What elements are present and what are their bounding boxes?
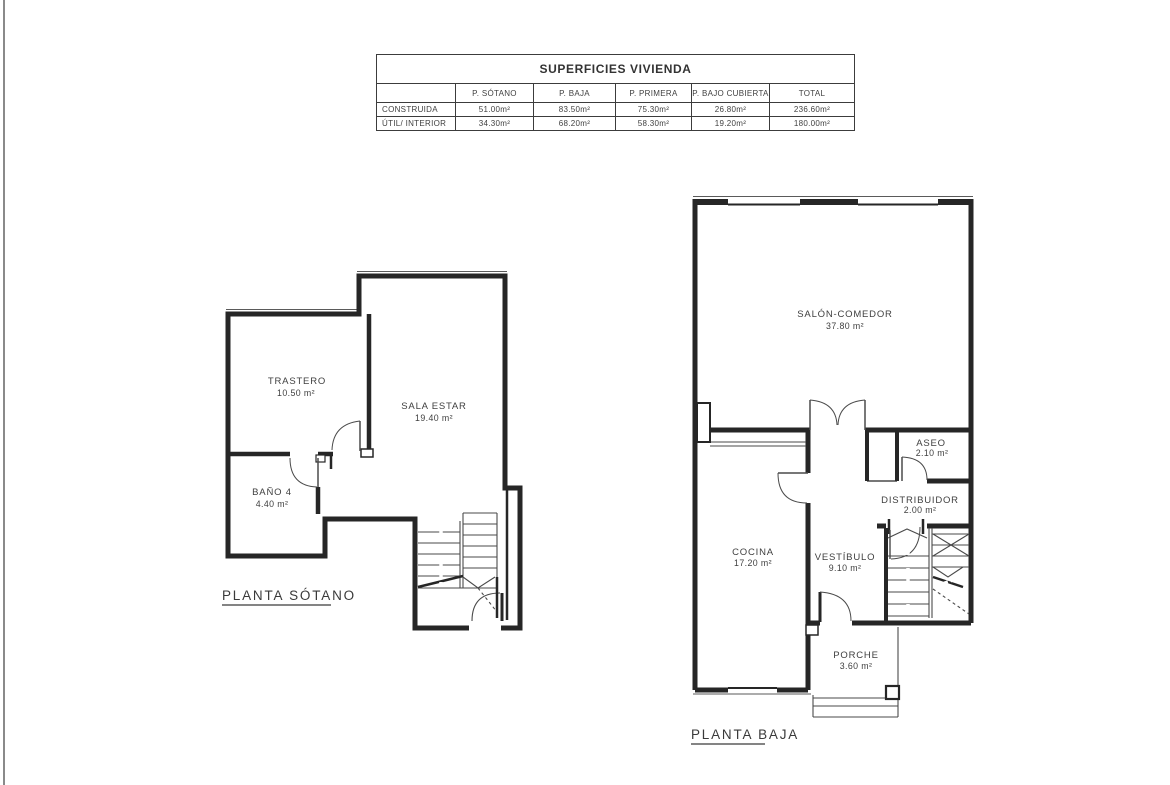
baja-title: PLANTA BAJA <box>691 727 799 744</box>
room-label-aseo: ASEO 2.10 m² <box>916 438 949 458</box>
vestibulo-name: VESTÍBULO <box>815 552 876 563</box>
plan-baja-title: PLANTA BAJA <box>691 727 799 742</box>
room-label-sala-estar: SALA ESTAR 19.40 m² <box>401 401 466 423</box>
vestibulo-area: 9.10 m² <box>829 563 862 573</box>
sotano-stairs <box>418 513 497 618</box>
room-label-trastero: TRASTERO 10.50 m² <box>268 376 326 398</box>
room-label-cocina: COCINA 17.20 m² <box>732 547 774 568</box>
porche-door <box>820 592 851 622</box>
baja-stairs <box>888 528 969 618</box>
sala-estar-name: SALA ESTAR <box>401 401 466 412</box>
trastero-area: 10.50 m² <box>277 388 315 398</box>
plan-baja: SALÓN-COMEDOR 37.80 m² ASEO 2.10 m² DIST… <box>691 197 973 745</box>
floorplans-drawing: TRASTERO 10.50 m² SALA ESTAR 19.40 m² BA… <box>0 0 1170 785</box>
baja-room-labels: SALÓN-COMEDOR 37.80 m² ASEO 2.10 m² DIST… <box>732 309 959 671</box>
salon-double-door <box>810 400 865 430</box>
room-label-vestibulo: VESTÍBULO 9.10 m² <box>815 552 876 573</box>
cocina-name: COCINA <box>732 547 774 558</box>
plan-sotano-title: PLANTA SÓTANO <box>222 588 356 603</box>
trastero-door <box>332 421 360 451</box>
porche-name: PORCHE <box>833 650 878 661</box>
bano4-area: 4.40 m² <box>256 499 289 509</box>
plan-sotano: TRASTERO 10.50 m² SALA ESTAR 19.40 m² BA… <box>222 272 520 634</box>
salon-comedor-name: SALÓN-COMEDOR <box>797 309 892 320</box>
room-label-bano4: BAÑO 4 4.40 m² <box>252 487 292 509</box>
distribuidor-area: 2.00 m² <box>904 505 937 515</box>
room-label-salon-comedor: SALÓN-COMEDOR 37.80 m² <box>797 309 892 331</box>
aseo-door <box>902 457 927 481</box>
room-label-porche: PORCHE 3.60 m² <box>833 650 878 671</box>
cocina-area: 17.20 m² <box>734 558 772 568</box>
salon-comedor-area: 37.80 m² <box>826 321 864 331</box>
baja-porche-outline <box>813 627 899 717</box>
understair-door <box>890 527 920 559</box>
aseo-area: 2.10 m² <box>916 448 949 458</box>
sotano-interior-walls <box>228 314 507 620</box>
sala-estar-area: 19.40 m² <box>415 413 453 423</box>
cocina-door <box>778 473 808 503</box>
sotano-title: PLANTA SÓTANO <box>222 588 356 605</box>
bano-door <box>290 458 318 487</box>
porche-area: 3.60 m² <box>840 661 873 671</box>
bano4-name: BAÑO 4 <box>252 487 292 498</box>
trastero-name: TRASTERO <box>268 376 326 387</box>
floorplan-sheet: SUPERFICIES VIVIENDA P. SÓTANO P. BAJA P… <box>0 0 1170 785</box>
room-label-distribuidor: DISTRIBUIDOR 2.00 m² <box>881 495 959 515</box>
